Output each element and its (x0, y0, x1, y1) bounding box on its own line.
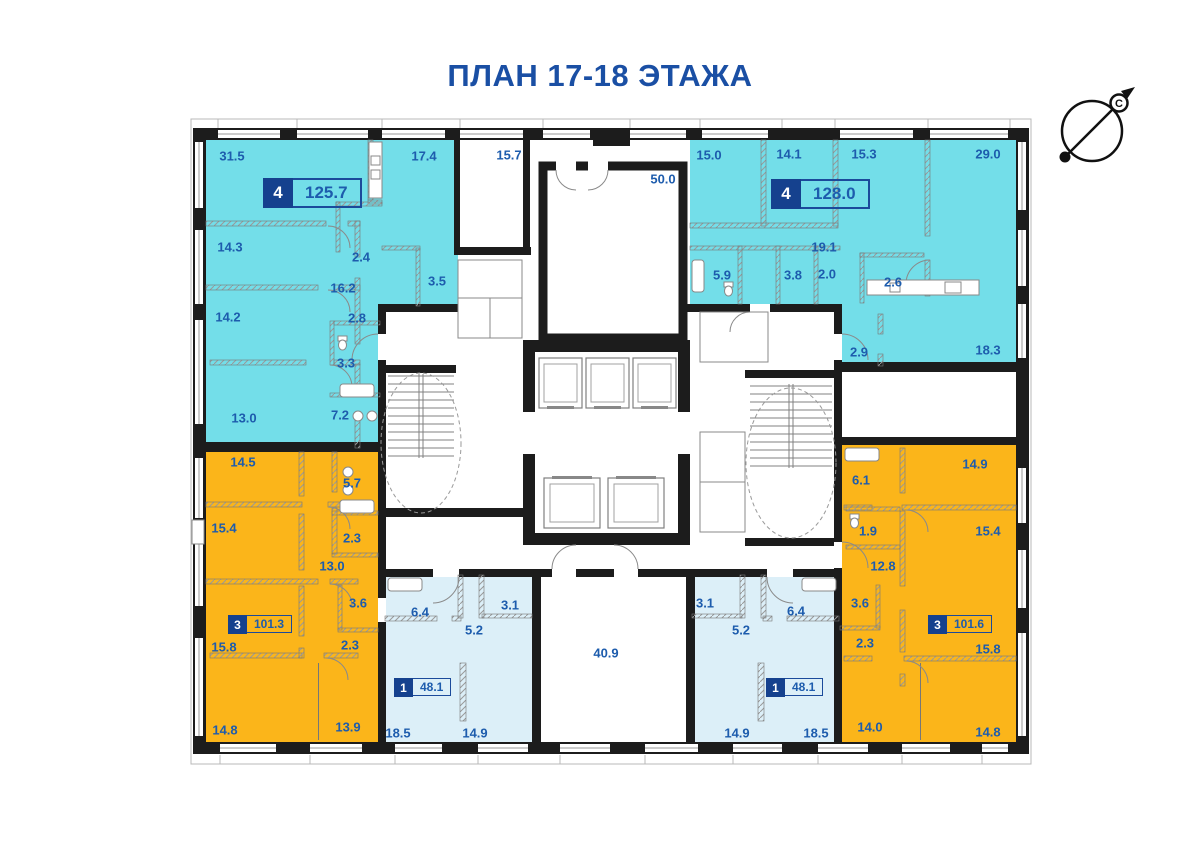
elevator-block (520, 340, 693, 545)
sink-icon (353, 411, 363, 421)
room-50 (543, 160, 683, 338)
apartment-region-bottom-middle-left (383, 575, 532, 742)
staircase-left (381, 373, 461, 513)
bathtub-icon (692, 260, 704, 292)
sink-icon (343, 467, 353, 477)
compass-north-letter: С (1115, 98, 1123, 110)
kitchen-counter (867, 280, 979, 295)
floor-plan-drawing (190, 118, 1032, 765)
staircase-right (746, 384, 836, 538)
page-title: ПЛАН 17-18 ЭТАЖА (0, 58, 1200, 94)
toilet-icon (850, 514, 859, 528)
toilet-icon (724, 282, 733, 296)
apartment-region-bottom-right (838, 443, 1016, 742)
bathtub-icon (802, 578, 836, 591)
bathtub-icon (845, 448, 879, 461)
bathtub-icon (340, 500, 374, 513)
compass-icon: С (1050, 70, 1145, 180)
apartment-region-bottom-left (206, 448, 380, 742)
floor-plan-page: ПЛАН 17-18 ЭТАЖА С (0, 0, 1200, 848)
bathtub-icon (388, 578, 422, 591)
sink-icon (343, 485, 353, 495)
toilet-icon (338, 336, 347, 350)
sink-icon (367, 411, 377, 421)
bathtub-icon (340, 384, 374, 397)
